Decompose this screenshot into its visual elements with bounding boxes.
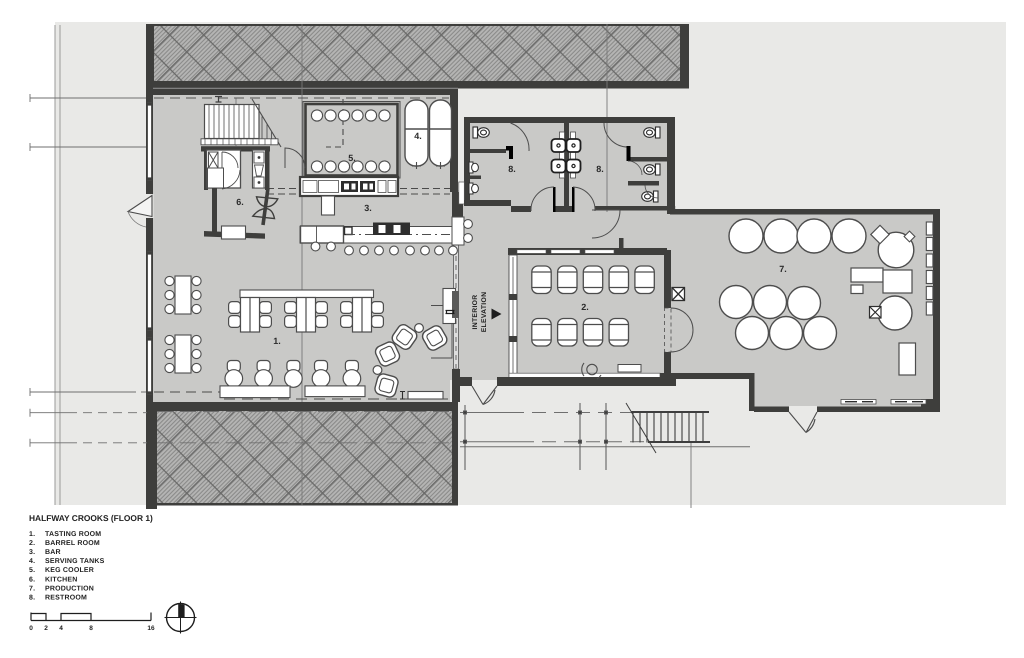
svg-text:8.: 8. — [508, 164, 516, 174]
svg-text:BAR: BAR — [45, 549, 61, 556]
svg-text:SERVING TANKS: SERVING TANKS — [45, 558, 105, 565]
svg-text:KITCHEN: KITCHEN — [45, 576, 78, 583]
svg-text:HALFWAY CROOKS (FLOOR 1): HALFWAY CROOKS (FLOOR 1) — [29, 513, 153, 523]
svg-text:2: 2 — [44, 625, 48, 632]
svg-text:2.: 2. — [29, 540, 35, 547]
svg-text:RESTROOM: RESTROOM — [45, 594, 87, 601]
svg-text:8.: 8. — [29, 594, 35, 601]
svg-text:8.: 8. — [596, 164, 604, 174]
svg-text:6.: 6. — [236, 197, 244, 207]
svg-text:4.: 4. — [414, 131, 422, 141]
svg-text:5.: 5. — [348, 153, 356, 163]
svg-text:ELEVATION: ELEVATION — [481, 292, 488, 333]
svg-text:6.: 6. — [29, 576, 35, 583]
svg-text:3.: 3. — [364, 203, 372, 213]
svg-text:BARREL ROOM: BARREL ROOM — [45, 540, 100, 547]
svg-text:4: 4 — [59, 625, 63, 632]
svg-text:4.: 4. — [29, 558, 35, 565]
svg-text:3.: 3. — [29, 549, 35, 556]
svg-text:INTERIOR: INTERIOR — [472, 295, 479, 330]
svg-text:2.: 2. — [581, 302, 589, 312]
svg-text:PRODUCTION: PRODUCTION — [45, 585, 94, 592]
svg-text:KEG COOLER: KEG COOLER — [45, 567, 94, 574]
svg-text:7.: 7. — [29, 585, 35, 592]
svg-text:16: 16 — [147, 625, 155, 632]
svg-text:0: 0 — [29, 625, 33, 632]
svg-text:TASTING ROOM: TASTING ROOM — [45, 531, 101, 538]
svg-text:8: 8 — [89, 625, 93, 632]
svg-text:7.: 7. — [779, 264, 787, 274]
svg-text:5.: 5. — [29, 567, 35, 574]
svg-text:1.: 1. — [29, 531, 35, 538]
svg-text:1.: 1. — [273, 336, 281, 346]
